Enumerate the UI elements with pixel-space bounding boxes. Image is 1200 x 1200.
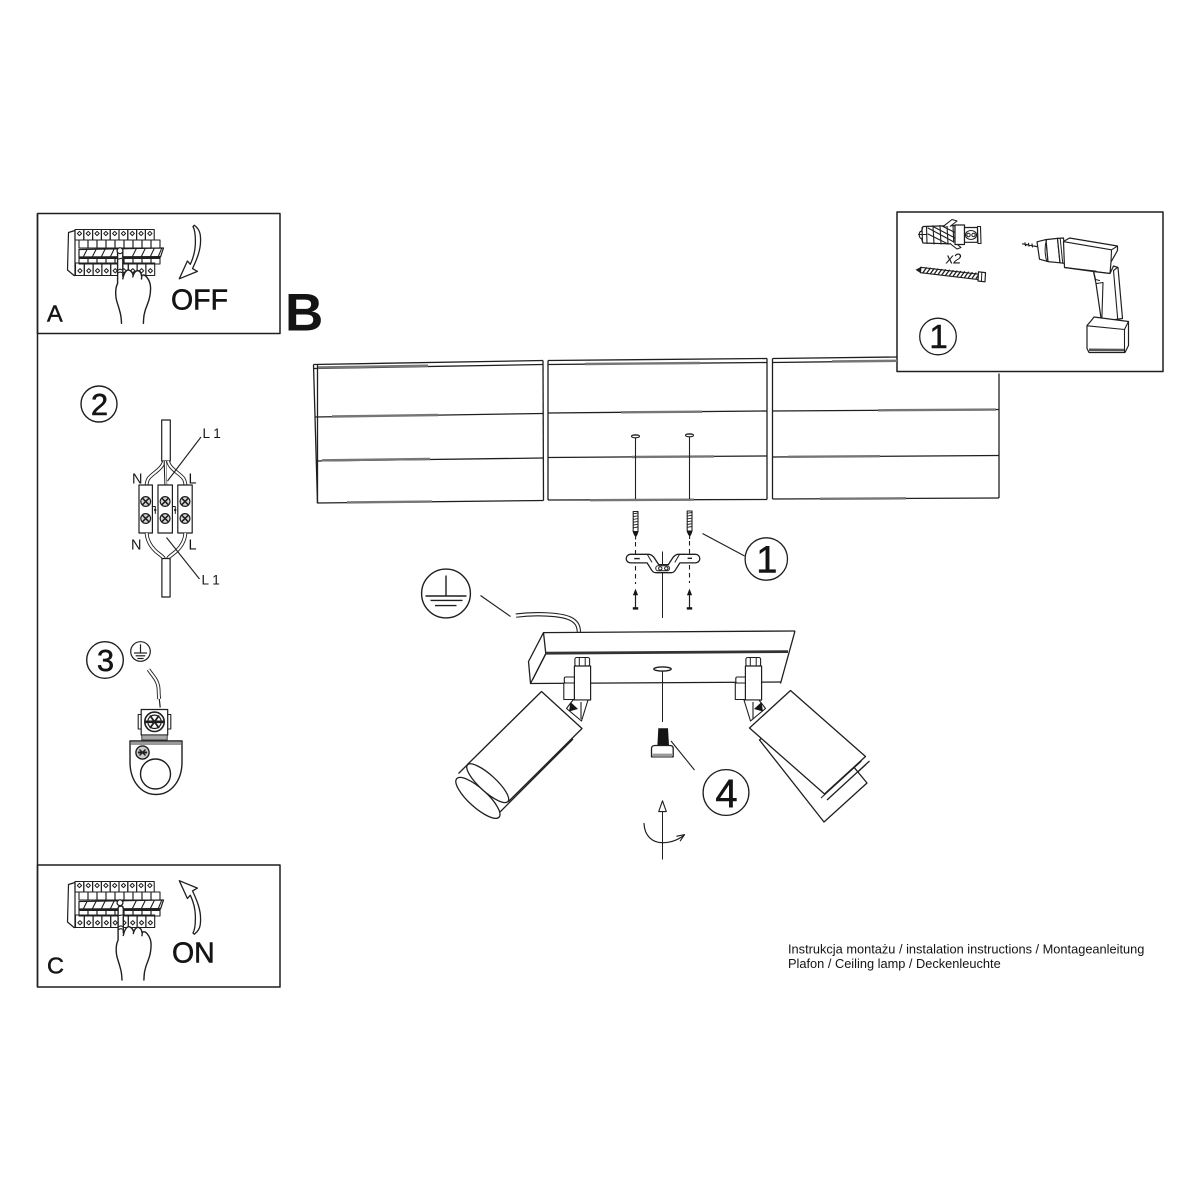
svg-text:4: 4 (715, 772, 737, 816)
svg-text:L: L (189, 472, 197, 488)
svg-text:A: A (47, 301, 63, 327)
svg-text:N: N (131, 538, 141, 554)
svg-text:Instrukcja montażu / instalati: Instrukcja montażu / instalation instruc… (788, 942, 1144, 957)
svg-text:L 1: L 1 (202, 573, 220, 588)
svg-text:1: 1 (929, 318, 947, 355)
svg-text:1: 1 (756, 540, 777, 582)
svg-text:B: B (285, 284, 323, 343)
svg-text:N: N (132, 472, 142, 488)
svg-text:2: 2 (91, 387, 108, 422)
svg-text:L 1: L 1 (203, 426, 221, 441)
svg-text:ON: ON (172, 938, 215, 970)
svg-text:3: 3 (97, 643, 114, 678)
svg-text:x2: x2 (945, 252, 961, 268)
svg-text:L: L (189, 538, 197, 554)
svg-text:Plafon / Ceiling lamp / Decken: Plafon / Ceiling lamp / Deckenleuchte (788, 956, 1001, 971)
svg-text:OFF: OFF (171, 285, 228, 317)
svg-text:C: C (47, 953, 64, 979)
